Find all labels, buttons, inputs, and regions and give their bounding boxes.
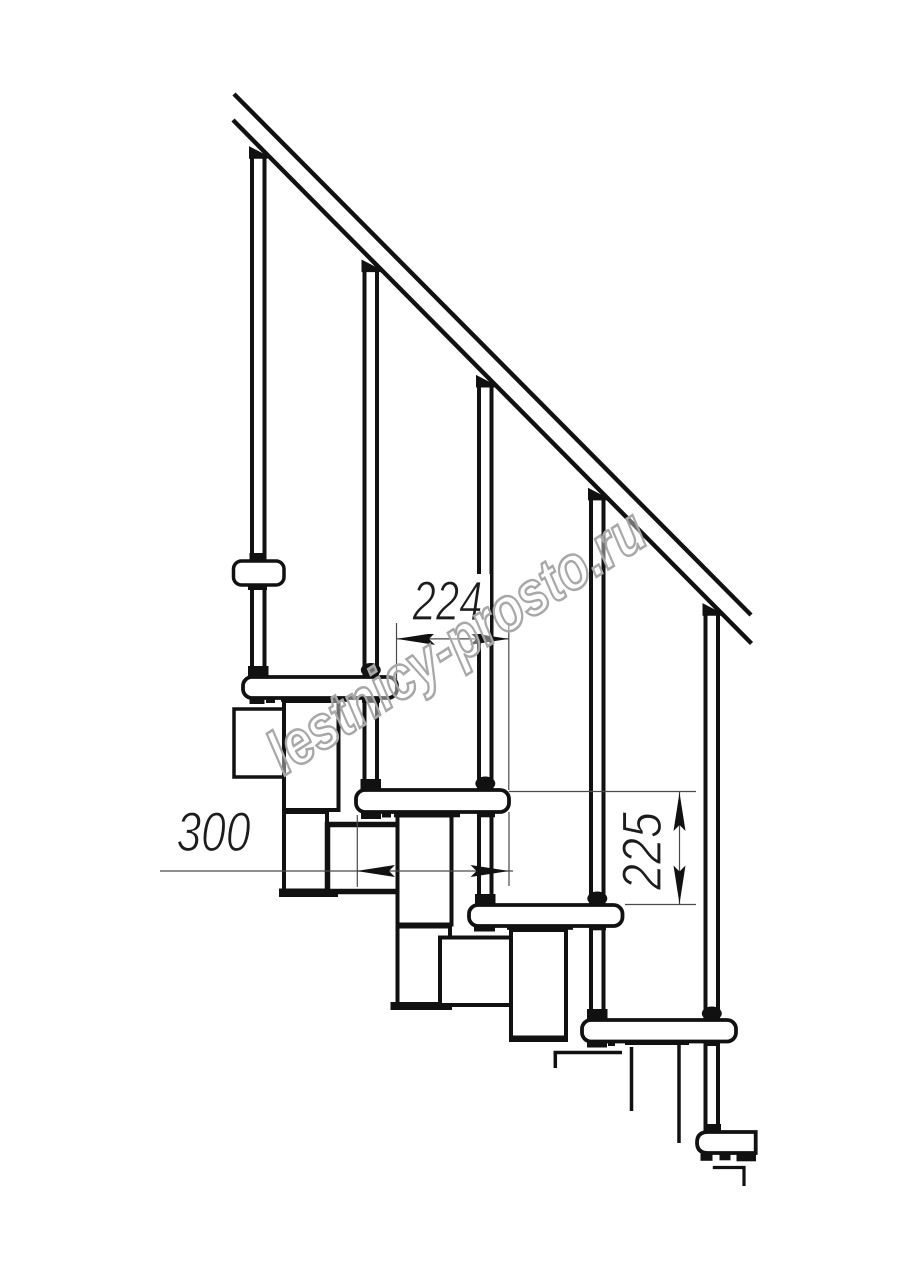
- svg-text:225: 225: [610, 811, 673, 891]
- svg-text:300: 300: [177, 800, 251, 863]
